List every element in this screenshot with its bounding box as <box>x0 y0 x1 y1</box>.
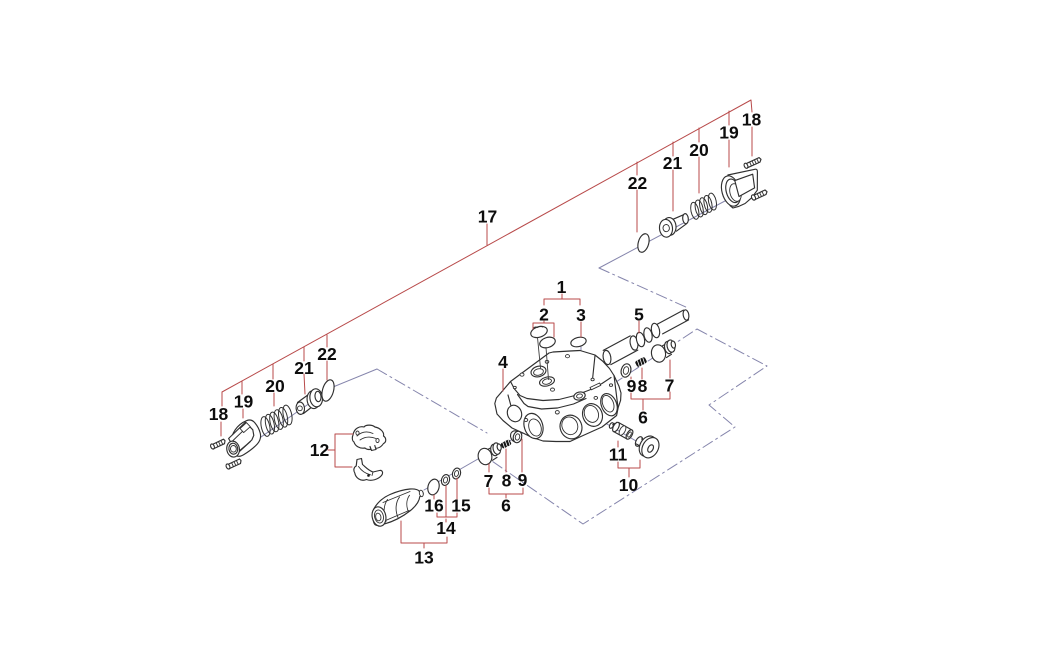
svg-text:9: 9 <box>627 376 637 396</box>
svg-text:16: 16 <box>424 496 444 516</box>
svg-text:19: 19 <box>234 392 254 412</box>
svg-text:20: 20 <box>265 376 285 396</box>
svg-text:8: 8 <box>502 471 512 491</box>
svg-text:9: 9 <box>518 470 528 490</box>
svg-text:20: 20 <box>689 140 709 160</box>
svg-text:14: 14 <box>436 518 456 538</box>
svg-text:21: 21 <box>663 153 683 173</box>
svg-text:17: 17 <box>478 207 497 227</box>
svg-text:18: 18 <box>742 110 762 130</box>
svg-text:4: 4 <box>498 352 508 372</box>
svg-text:3: 3 <box>576 305 586 325</box>
svg-text:10: 10 <box>619 475 639 495</box>
svg-text:2: 2 <box>539 305 549 325</box>
svg-text:22: 22 <box>317 344 337 364</box>
svg-text:19: 19 <box>719 123 739 143</box>
svg-text:1: 1 <box>557 277 567 297</box>
svg-text:11: 11 <box>609 445 628 465</box>
svg-text:5: 5 <box>634 305 644 325</box>
svg-text:6: 6 <box>501 496 511 516</box>
svg-text:21: 21 <box>294 358 314 378</box>
svg-text:13: 13 <box>414 548 434 568</box>
svg-text:7: 7 <box>665 376 675 396</box>
svg-text:7: 7 <box>484 471 494 491</box>
svg-text:12: 12 <box>310 440 330 460</box>
svg-text:15: 15 <box>451 496 471 516</box>
svg-text:8: 8 <box>638 376 648 396</box>
svg-text:6: 6 <box>638 408 648 428</box>
svg-text:18: 18 <box>209 404 229 424</box>
svg-text:22: 22 <box>628 173 648 193</box>
